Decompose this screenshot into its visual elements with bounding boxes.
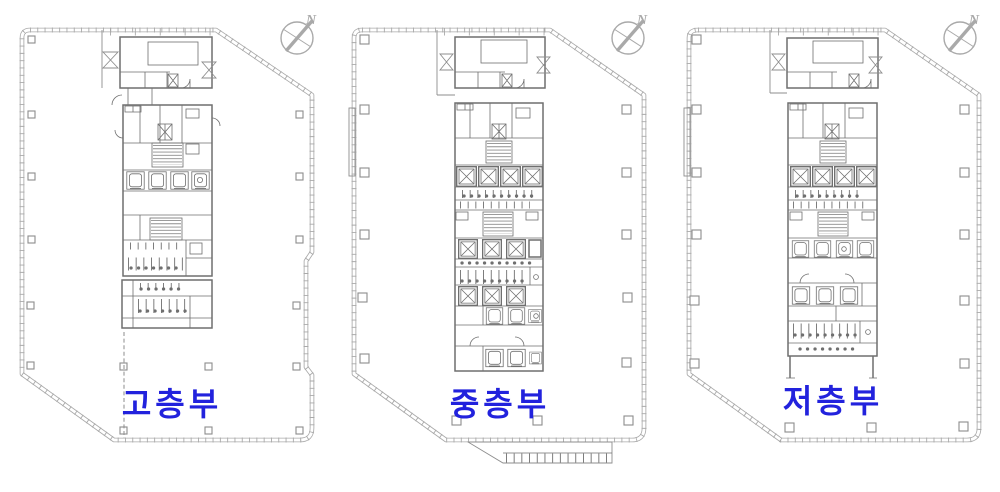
mech-room-low — [770, 30, 882, 93]
column-grid-low — [690, 35, 969, 432]
north-label-high: N — [305, 13, 317, 28]
floor-plan-high-zone: N 고층부 — [22, 13, 317, 440]
north-label-low: N — [968, 13, 980, 28]
building-outline-low — [684, 30, 979, 440]
floor-plan-mid-zone: N 중층부 — [349, 13, 648, 463]
north-compass-icon-high: N — [281, 13, 317, 54]
north-label-mid: N — [636, 13, 648, 28]
building-outline-mid — [349, 30, 644, 440]
north-compass-icon-mid: N — [612, 13, 648, 54]
mech-room-mid — [437, 30, 550, 95]
plan-label-high: 고층부 — [122, 386, 222, 422]
building-outline-high — [22, 30, 312, 440]
floor-plans-drawing: N 고층부 — [0, 0, 1000, 492]
mech-room-high — [102, 30, 216, 105]
north-compass-icon-low: N — [944, 13, 980, 54]
floor-plan-low-zone: N 저층부 — [684, 13, 980, 440]
floor-plan-sheet: N 고층부 — [0, 0, 1000, 492]
plan-label-mid: 중층부 — [450, 386, 550, 422]
plan-label-low: 저층부 — [783, 383, 883, 419]
column-grid-high — [27, 36, 303, 434]
canopy — [468, 442, 612, 463]
core-mid — [455, 103, 543, 371]
core-low — [786, 103, 877, 378]
